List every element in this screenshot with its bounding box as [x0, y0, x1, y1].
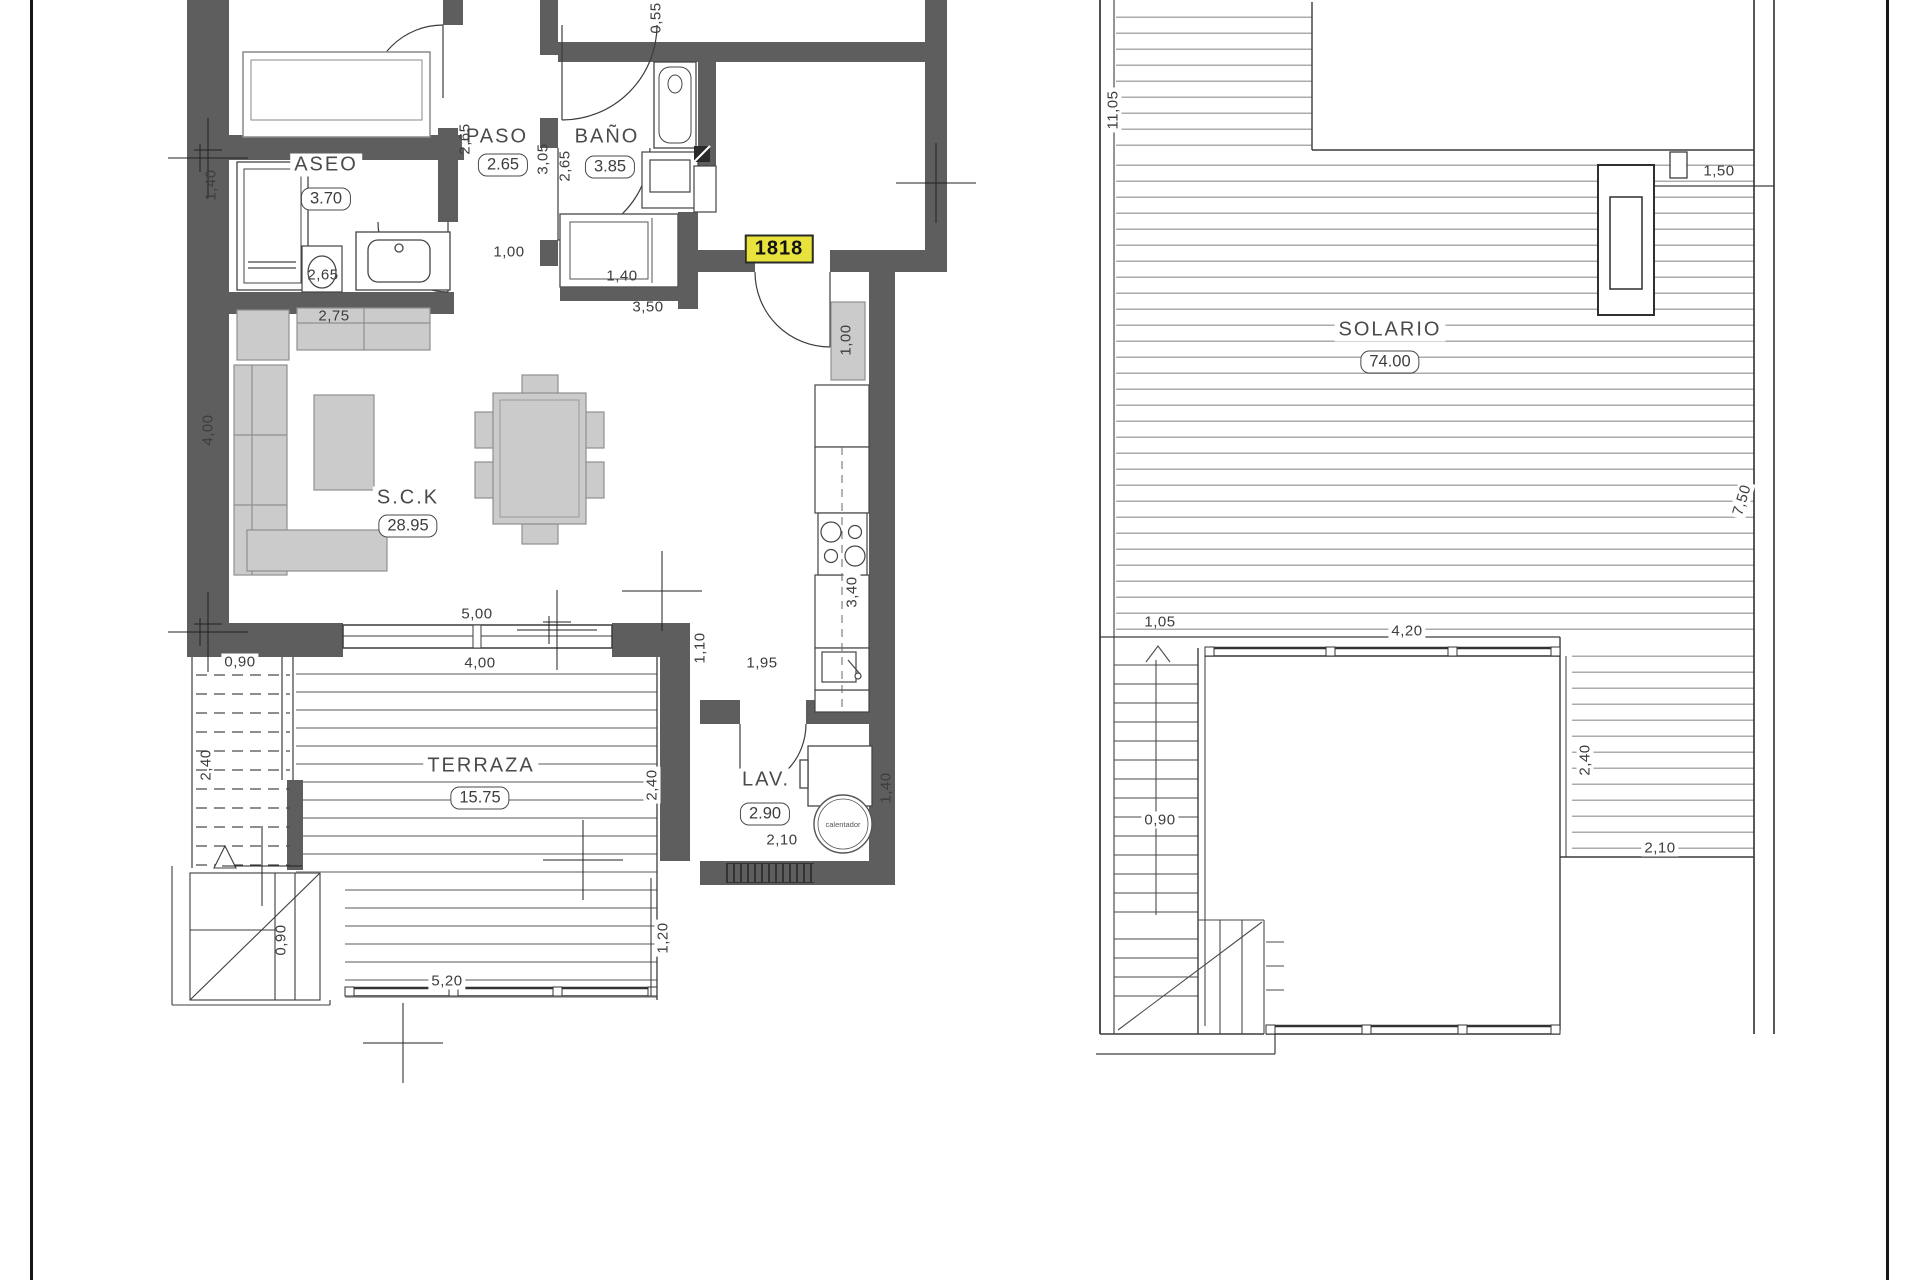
dimension-label: 2,10: [1641, 840, 1678, 857]
room-label: ASEO: [290, 154, 362, 177]
dimension-label: 2,40: [1577, 741, 1594, 778]
vent-grille: [726, 863, 814, 883]
room-area-badge: 3.70: [301, 188, 351, 211]
bath-sink: [642, 152, 698, 208]
dimension-label: 2,10: [766, 832, 797, 849]
dimension-label: 4,20: [1388, 623, 1425, 640]
water-heater: calentador: [814, 795, 872, 853]
dimension-label: 2,40: [198, 749, 215, 780]
unit-number-badge: 1818: [745, 235, 814, 264]
dimension-label: 1,95: [746, 655, 777, 672]
dimension-label: 4,00: [461, 655, 498, 672]
dimension-label: 1,40: [203, 169, 220, 200]
bathtub: [654, 62, 696, 148]
roof-detail-square: [1670, 152, 1687, 178]
dimension-label: 1,20: [655, 919, 672, 956]
room-label: LAV.: [738, 769, 794, 792]
chimney: [1598, 165, 1654, 315]
floorplan-sheet: calentador: [0, 0, 1920, 1280]
room-label: TERRAZA: [423, 755, 538, 778]
room-label: BAÑO: [571, 126, 644, 149]
dimension-label: 2,65: [307, 267, 338, 284]
dimension-label: 2,65: [457, 123, 474, 154]
room-area-badge: 3.85: [585, 156, 635, 179]
dining-table: [475, 375, 604, 544]
kitchen-units: [815, 385, 869, 712]
solarium-railing-bottom: [1266, 1025, 1560, 1034]
dimension-label: 5,00: [461, 606, 492, 623]
dimension-label: 2,65: [557, 150, 574, 181]
svg-text:calentador: calentador: [825, 820, 861, 829]
dimension-label: 2,40: [644, 766, 661, 803]
dimension-label: 1,00: [493, 244, 524, 261]
dimension-label: 1,40: [878, 772, 895, 803]
room-label: S.C.K: [373, 487, 443, 510]
stair-direction-arrow: [214, 846, 236, 868]
dimension-label: 5,20: [428, 973, 465, 990]
dimension-label: 1,50: [1703, 163, 1734, 180]
dimension-label: 1,40: [606, 268, 637, 285]
shower: [237, 162, 308, 290]
room-area-badge: 28.95: [378, 515, 437, 538]
coffee-table: [314, 395, 374, 490]
dimension-label: 0,90: [221, 654, 258, 671]
dimension-label: 1,00: [838, 324, 855, 355]
room-area-badge: 2.65: [478, 154, 528, 177]
bed: [243, 52, 430, 137]
terrace-railing: [345, 657, 657, 1000]
dimension-label: 11,05: [1105, 88, 1122, 133]
dimension-label: 0,90: [1141, 812, 1178, 829]
room-area-badge: 2.90: [740, 803, 790, 826]
tv-sideboard: [247, 530, 387, 571]
dimension-label: 3,05: [535, 143, 552, 174]
room-label: SOLARIO: [1335, 319, 1446, 342]
stairs-lower: [172, 846, 330, 1005]
terrace-window: [343, 625, 612, 648]
dimension-label: 1,05: [1144, 614, 1175, 631]
solarium-railing-top: [1205, 647, 1560, 656]
dimension-label: 4,00: [200, 414, 217, 445]
solarium-stairs: [1114, 646, 1284, 1034]
room-area-badge: 74.00: [1360, 351, 1419, 374]
washbasin: [356, 232, 450, 290]
plan-linework: calentador: [0, 0, 1920, 1280]
dimension-label: 2,75: [318, 308, 349, 325]
dimension-label: 3,50: [632, 299, 663, 316]
dimension-label: 1,10: [692, 632, 709, 663]
dimension-label: 0,90: [273, 924, 290, 955]
room-area-badge: 15.75: [450, 787, 509, 810]
dimension-label: 3,40: [844, 573, 861, 610]
dimension-label: 0,55: [648, 2, 665, 33]
